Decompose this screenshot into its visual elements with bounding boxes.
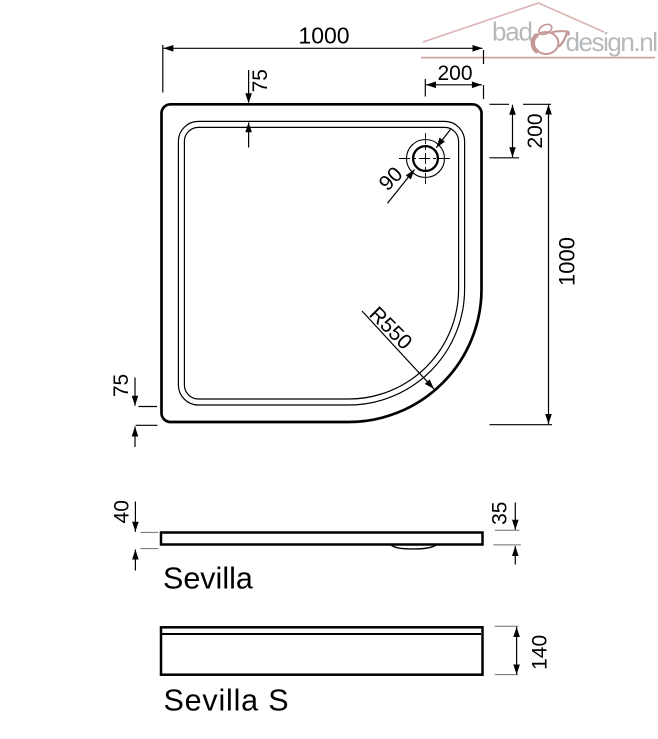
svg-text:40: 40 — [111, 500, 134, 523]
svg-text:200: 200 — [524, 113, 547, 148]
svg-text:1000: 1000 — [555, 237, 580, 286]
svg-text:design.nl: design.nl — [566, 27, 658, 57]
svg-text:140: 140 — [528, 635, 551, 670]
svg-text:bad: bad — [492, 17, 532, 47]
svg-text:75: 75 — [110, 374, 133, 397]
svg-text:200: 200 — [437, 62, 472, 85]
svg-text:1000: 1000 — [298, 23, 349, 49]
svg-text:35: 35 — [489, 502, 512, 525]
svg-text:Sevilla S: Sevilla S — [164, 684, 290, 718]
svg-text:Sevilla: Sevilla — [163, 562, 253, 596]
svg-text:75: 75 — [249, 69, 272, 92]
